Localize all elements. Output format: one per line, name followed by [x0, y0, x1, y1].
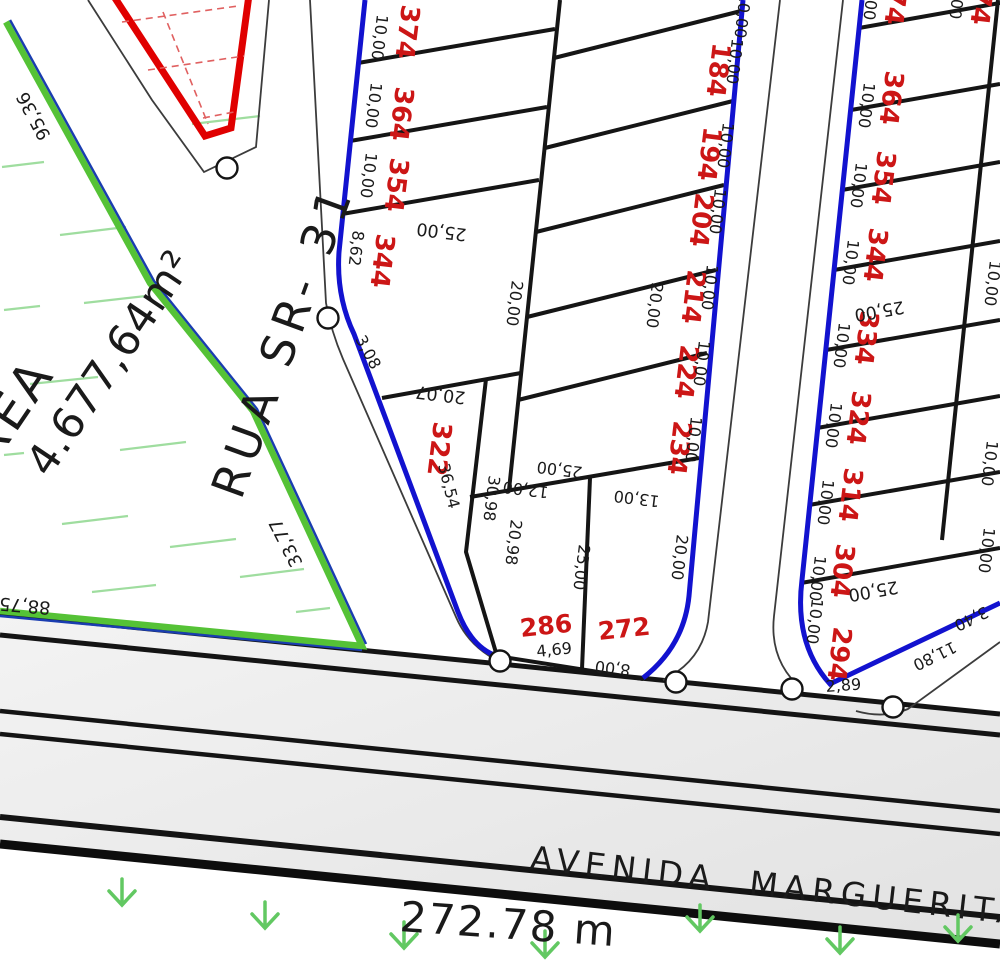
- lot-number: 374: [963, 0, 999, 27]
- cadastral-map: 374 364 354 344 322 286 10,00 10,00 10,0…: [0, 0, 1000, 966]
- survey-marker-icon: [883, 697, 904, 718]
- lot-number: 374: [877, 0, 913, 27]
- dimension-label: 2,89: [825, 675, 862, 696]
- survey-marker-icon: [666, 672, 687, 693]
- survey-marker-icon: [217, 158, 238, 179]
- survey-marker-icon: [490, 651, 511, 672]
- survey-marker-icon: [782, 679, 803, 700]
- lot-number: 286: [519, 609, 574, 643]
- lot-number: 272: [597, 612, 652, 646]
- dimension-label: 4,69: [535, 638, 572, 661]
